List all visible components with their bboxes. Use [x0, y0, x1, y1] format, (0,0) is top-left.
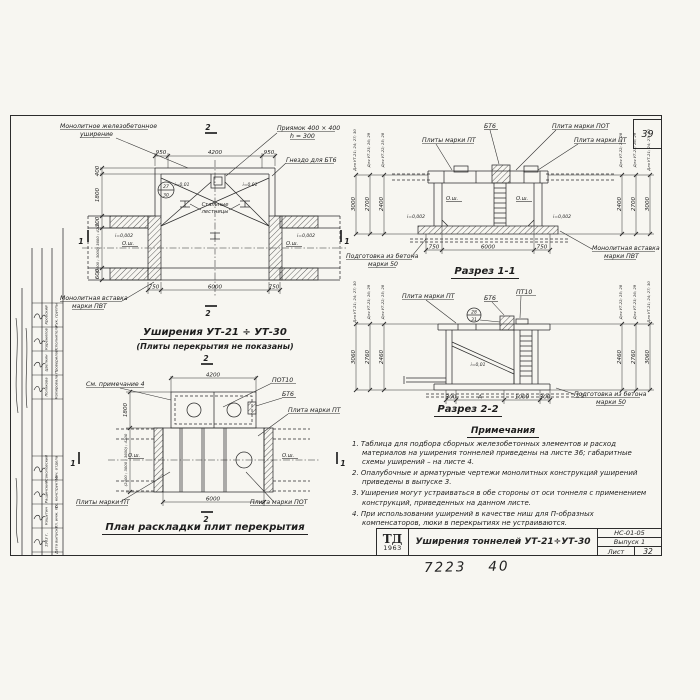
- walls-and-ladder: [446, 330, 538, 384]
- plan-bottom-labels: См. примечание 4 ПОТ10 БТ6 Плита марки П…: [76, 377, 342, 506]
- label-plate-pot: Плита марки ПОТ: [552, 123, 611, 130]
- label-prep: Подготовка из бетона: [346, 252, 419, 260]
- doc-number: НС-01-05: [598, 529, 661, 538]
- dim-value: 750: [269, 285, 280, 291]
- logo-year: 1963: [383, 545, 402, 552]
- label-prep: марки 50: [368, 261, 398, 268]
- label-slope: i=0,002: [407, 214, 425, 220]
- label-slope: i=0,01: [174, 182, 189, 188]
- section-1-1-title-text: Разрез 1-1: [451, 266, 518, 279]
- section-mark-1: 1: [78, 237, 83, 246]
- stamp-name: Кробский: [44, 305, 49, 325]
- label-slope: i=0,002: [115, 233, 133, 239]
- roof-slab: [438, 316, 550, 330]
- dim-value: 6000: [481, 245, 496, 251]
- label-axis: О.ш.: [516, 196, 528, 202]
- dim-value: 4200: [208, 150, 223, 156]
- section-mark-1: 1: [70, 459, 75, 468]
- dim-value: 950: [264, 150, 275, 156]
- section-mark-2: 2: [205, 309, 210, 318]
- height-value: 3000: [351, 196, 357, 211]
- label-slope: i=0,002: [553, 214, 571, 220]
- stamp-role: Дата выпуска: [54, 525, 59, 554]
- bt6-block: [492, 165, 510, 183]
- walls: [434, 183, 542, 226]
- detail-number: 27: [163, 184, 169, 190]
- dim-value: 300: [540, 395, 551, 401]
- stamp-name: Цветкин: [44, 354, 49, 371]
- label-plates-pt: Плиты марки ПТ: [76, 499, 131, 506]
- dim-value: 300: [446, 395, 457, 401]
- detail-number: 31: [471, 317, 477, 323]
- roof-slab: [428, 166, 548, 183]
- label-plates-pt: Плиты марки ПТ: [422, 137, 477, 144]
- note-item-3: 3. Уширения могут устраиваться в обе сто…: [352, 489, 654, 507]
- height-value: 2700: [365, 196, 371, 211]
- plan-top-title-text: Уширения УТ-21 ÷ УТ-30: [140, 327, 290, 340]
- label-bt6: БТ6: [484, 123, 496, 130]
- label-pit: Приямок 400 × 400: [277, 125, 340, 132]
- notes-section: Примечания 1. Таблица для подбора сборны…: [352, 426, 654, 530]
- dim-top: 4200: [169, 373, 258, 393]
- label-slope: i=0,002: [297, 233, 315, 239]
- title-block: ТД 1963 Уширения тоннелей УТ-21÷УТ-30 НС…: [376, 528, 662, 556]
- dim-value: 750: [149, 285, 160, 291]
- label-axis: О.ш.: [446, 196, 458, 202]
- stamp-name: Ращинский: [44, 480, 49, 503]
- slab-layout-title: План раскладки плит перекрытия: [80, 522, 330, 535]
- label-pot10: ПОТ10: [272, 377, 293, 384]
- dim-value: 6000: [208, 285, 223, 291]
- height-dims-right: Для УТ-22; 25; 28 Для УТ-23; 26; 29 Для …: [550, 281, 654, 392]
- label-plate-pt: Плита марки ПТ: [288, 407, 342, 414]
- height-value: 2760: [365, 349, 371, 364]
- dim-value: 750: [429, 245, 440, 251]
- sheet-row: Лист 32: [598, 547, 661, 556]
- height-value: 3000: [645, 196, 651, 211]
- height-value: 3060: [351, 349, 357, 364]
- stamp-name: Кошутин: [44, 507, 49, 525]
- stamp-name: Соколовский: [44, 455, 49, 481]
- label-axis: О.ш.: [282, 453, 294, 459]
- dim-value: 750: [537, 245, 548, 251]
- issue-number: Выпуск 1: [598, 538, 661, 547]
- section-2-2-title: Разрез 2-2: [408, 404, 528, 417]
- height-label: Для УТ-23; 26; 29: [632, 284, 637, 320]
- title-block-logo: ТД 1963: [377, 529, 409, 555]
- stamp-rows-lower: Нач. отдела Соколовский Гл. конструктор …: [44, 455, 59, 555]
- label-monolithic-widening: Монолитное железобетонное: [60, 122, 157, 130]
- label-monolithic-insert: Монолитная вставка: [60, 295, 128, 302]
- height-label: Для УТ-21; 24; 27; 30: [352, 129, 357, 172]
- height-label: Для УТ-21; 24; 27; 30: [646, 129, 651, 172]
- dim-left: 1800 (2400 ; 3000 ; 3600) ; 4200: [123, 390, 171, 494]
- label-socket-bt6: Гнездо для БТ6: [286, 157, 337, 164]
- height-label: Для УТ-22; 25; 28: [380, 132, 385, 168]
- floor-slab: [410, 226, 568, 242]
- dim-value: 1000: [515, 395, 530, 401]
- label-prep: марки 50: [596, 399, 626, 406]
- label-plate-pot: Плита марки ПОТ: [250, 499, 309, 506]
- label-monolithic-widening: уширение: [79, 131, 113, 138]
- detail-callout-27-30: 27 30: [158, 182, 174, 199]
- dim-value: 4200: [206, 373, 221, 379]
- section-mark-1: 1: [340, 459, 345, 468]
- height-label: Для УТ-21; 24; 27; 30: [646, 281, 651, 324]
- section-mark-2: 2: [205, 123, 210, 132]
- height-value: 2460: [379, 349, 385, 364]
- ladder: [494, 183, 506, 226]
- section1-labels: БТ6 Плита марки ПОТ Плиты марки ПТ Плита…: [346, 123, 660, 268]
- detail-number: 30: [163, 193, 169, 199]
- sheet-number: 32: [635, 547, 661, 556]
- title-block-right: НС-01-05 Выпуск 1 Лист 32: [597, 529, 661, 555]
- slab-layout-plan: 4200 6000 1800 (2400 ; 3000 ; 3600) ; 42…: [58, 352, 350, 528]
- logo-td: ТД: [383, 533, 403, 545]
- height-label: Для УТ-22; 25; 28: [618, 284, 623, 320]
- floor-slab: [404, 376, 586, 397]
- detail-number: 28: [471, 310, 477, 316]
- height-value: 2700: [631, 196, 637, 211]
- height-label: Для УТ-23; 26; 29: [366, 132, 371, 168]
- label-pit: h = 300: [290, 133, 315, 140]
- note-item-1: 1. Таблица для подбора сборных железобет…: [352, 440, 654, 467]
- label-prep: Подготовка из бетона: [574, 390, 647, 398]
- pt10-plate: [516, 319, 528, 324]
- note-item-4: 4. При использовании уширений в качестве…: [352, 510, 654, 528]
- dim-value: 1800: [123, 402, 129, 417]
- detail-callout-28-31: 28 31: [467, 308, 500, 323]
- dim-value: А: [477, 395, 482, 401]
- height-value: 2400: [617, 196, 623, 211]
- note-item-2: 2. Опалубочные и арматурные чертежи моно…: [352, 469, 654, 487]
- height-label: Для УТ-21; 24; 27; 30: [352, 281, 357, 324]
- height-label: Для УТ-22; 25; 28: [380, 284, 385, 320]
- stamp-role: Исполнитель: [54, 326, 59, 352]
- slab-layout-title-text: План раскладки плит перекрытия: [102, 522, 307, 535]
- dim-value: (2400 ; 3000 ; 3600) ; 4200: [123, 433, 128, 486]
- label-monolithic-insert: марки ПВТ: [72, 303, 108, 310]
- plan-widening-view: 27 30 950 4200 950 750 6000 750 400 1800…: [58, 116, 350, 328]
- height-label: Для УТ-23; 26; 29: [366, 284, 371, 320]
- height-label: Для УТ-23; 26; 29: [632, 132, 637, 168]
- height-value: 2400: [379, 196, 385, 211]
- section-mark-2: 2: [203, 354, 208, 363]
- handwritten-numbers: 722340: [424, 558, 532, 576]
- section-1-1-view: БТ6 Плита марки ПОТ Плиты марки ПТ Плита…: [346, 118, 660, 276]
- stamp-name: 1963 г.: [44, 533, 49, 547]
- label-steel-stairs: Стальные: [202, 202, 229, 208]
- bt6-socket: [248, 402, 256, 414]
- drawing-sheet: 39 Рук. группы Кробский Исполнитель Коре…: [0, 0, 700, 700]
- height-value: 2760: [631, 349, 637, 364]
- plan-top-title: Уширения УТ-21 ÷ УТ-30 (Плиты перекрытия…: [105, 327, 325, 351]
- pit-400x400: [211, 174, 225, 188]
- plan-top-subtitle: (Плиты перекрытия не показаны): [105, 342, 325, 351]
- label-pt10: ПТ10: [516, 289, 532, 296]
- label-bt6: БТ6: [484, 295, 496, 302]
- section-2-2-view: 28 31 Плита марки ПТ БТ6 ПТ10 i=0,01 Под…: [346, 282, 660, 424]
- dim-bottom: 750 6000 750: [146, 282, 282, 294]
- label-slope: i=0,01: [242, 182, 257, 188]
- stamp-name: Коренилов: [44, 327, 49, 349]
- label-bt6: БТ6: [282, 391, 294, 398]
- dim-value: 1800: [95, 187, 101, 202]
- section2-labels: Плита марки ПТ БТ6 ПТ10 i=0,01 Подготовк…: [402, 289, 647, 406]
- section-2-2-title-text: Разрез 2-2: [434, 404, 501, 417]
- upper-cover-block: [171, 392, 256, 428]
- label-axis: О.ш.: [286, 241, 298, 247]
- drawing-title: Уширения тоннелей УТ-21÷УТ-30: [409, 529, 597, 555]
- stamp-signatures: [16, 314, 45, 545]
- section-1-1-title: Разрез 1-1: [425, 266, 545, 279]
- dim-value: 600: [95, 268, 101, 279]
- left-stamp: Рук. группы Кробский Исполнитель Коренил…: [10, 228, 63, 556]
- label-see-note-4: См. примечание 4: [86, 381, 145, 388]
- height-label: Для УТ-22; 25; 28: [618, 132, 623, 168]
- dim-value: 6000: [206, 497, 221, 503]
- label-insert: Монолитная вставка: [592, 245, 660, 252]
- label-axis: О.ш.: [128, 453, 140, 459]
- label-insert: марки ПВТ: [604, 253, 640, 260]
- footer-number-left: 7223: [424, 559, 467, 576]
- label-axis: О.ш.: [122, 241, 134, 247]
- sheet-label: Лист: [598, 547, 635, 556]
- dim-value: 400: [95, 165, 101, 176]
- height-value: 2460: [617, 349, 623, 364]
- stamp-name: Полякова: [44, 377, 49, 397]
- label-slope: i=0,01: [470, 362, 485, 368]
- label-plate-pt: Плита марки ПТ: [402, 293, 456, 300]
- label-steel-stairs: лестницы: [201, 209, 229, 215]
- footer-number-right: 40: [488, 558, 509, 574]
- dim-value: (2400 ; 3000) 3600 ; 4200: [95, 222, 100, 273]
- height-value: 3060: [645, 349, 651, 364]
- notes-title: Примечания: [352, 426, 654, 436]
- bt6-block: [500, 316, 514, 330]
